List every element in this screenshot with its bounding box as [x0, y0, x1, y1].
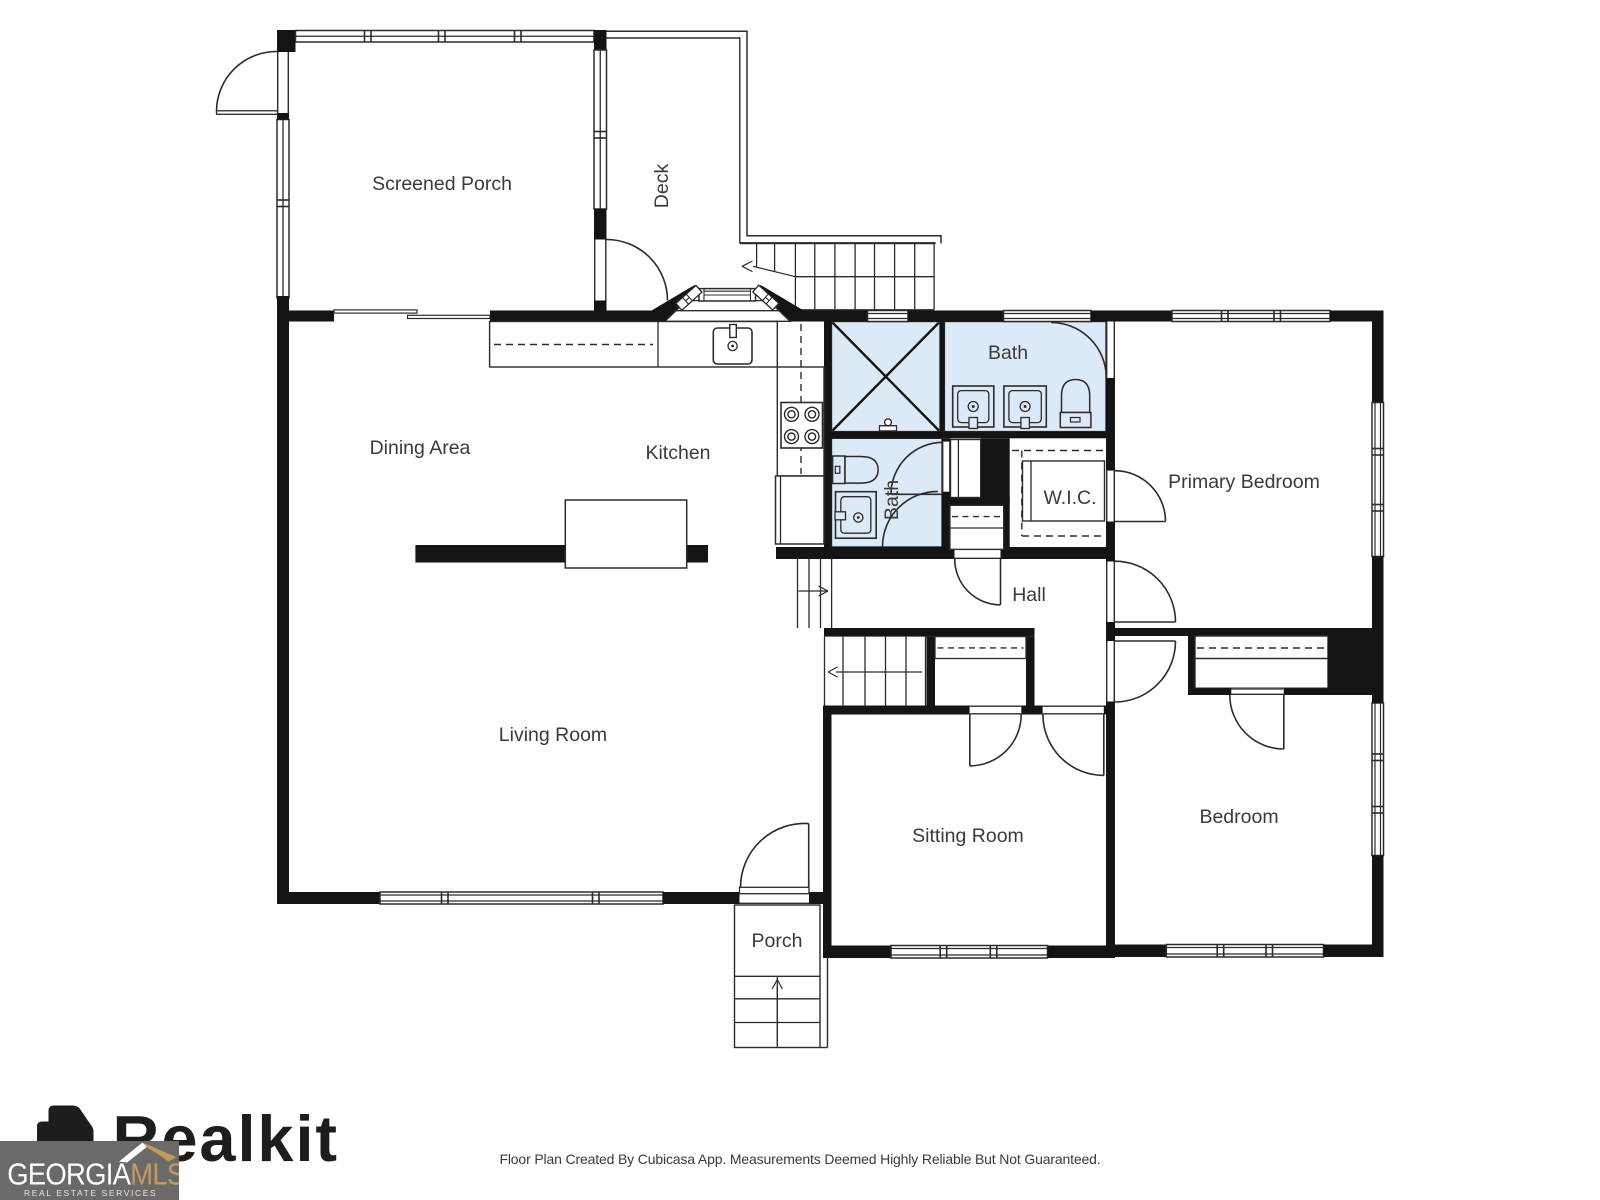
svg-text:Hall: Hall [1012, 584, 1046, 606]
svg-text:Living Room: Living Room [499, 724, 607, 746]
svg-text:Deck: Deck [651, 164, 673, 209]
svg-text:Bedroom: Bedroom [1199, 806, 1278, 828]
svg-text:Bath: Bath [881, 480, 903, 520]
svg-text:REAL ESTATE SERVICES: REAL ESTATE SERVICES [24, 1188, 157, 1198]
svg-text:Primary Bedroom: Primary Bedroom [1168, 471, 1320, 493]
svg-text:Dining Area: Dining Area [370, 437, 471, 459]
svg-text:Bath: Bath [988, 342, 1028, 364]
svg-text:Screened Porch: Screened Porch [372, 173, 512, 195]
svg-text:Sitting Room: Sitting Room [912, 825, 1024, 847]
svg-text:Porch: Porch [752, 930, 803, 952]
svg-text:W.I.C.: W.I.C. [1043, 487, 1096, 509]
svg-text:Kitchen: Kitchen [645, 442, 710, 464]
